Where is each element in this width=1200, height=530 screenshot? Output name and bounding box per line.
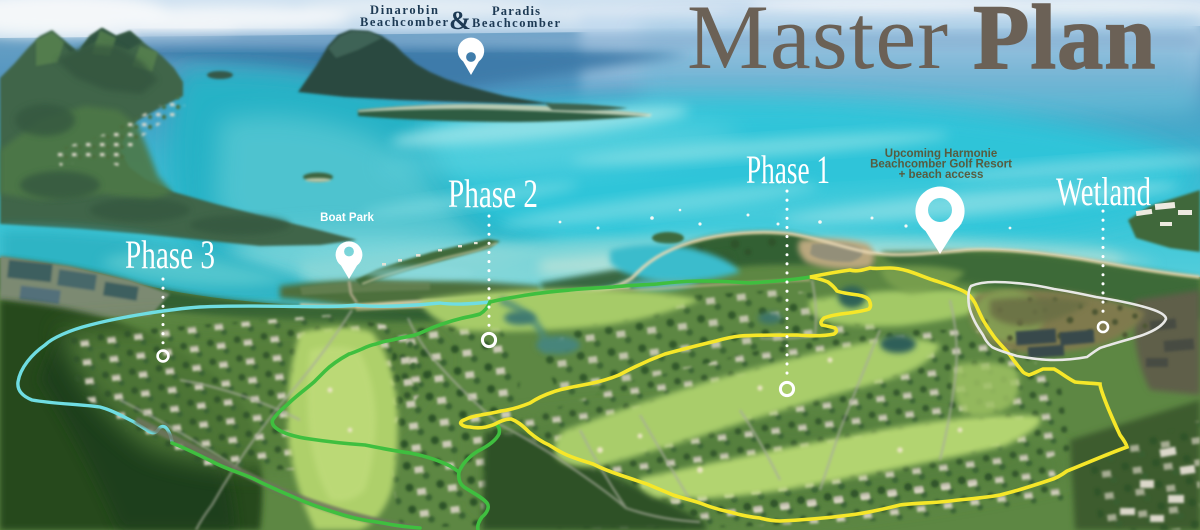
svg-text:Beachcomber: Beachcomber (472, 16, 560, 30)
svg-text:Beachcomber: Beachcomber (360, 15, 448, 29)
svg-text:Phase 1: Phase 1 (746, 147, 830, 192)
svg-text:+ beach access: + beach access (899, 169, 984, 181)
svg-text:Phase 3: Phase 3 (125, 232, 215, 277)
svg-text:Master Plan: Master Plan (687, 0, 1157, 88)
svg-text:Wetland: Wetland (1056, 169, 1151, 214)
svg-text:&: & (449, 6, 471, 35)
svg-text:Phase 2: Phase 2 (448, 171, 538, 216)
svg-text:Boat Park: Boat Park (320, 212, 374, 224)
